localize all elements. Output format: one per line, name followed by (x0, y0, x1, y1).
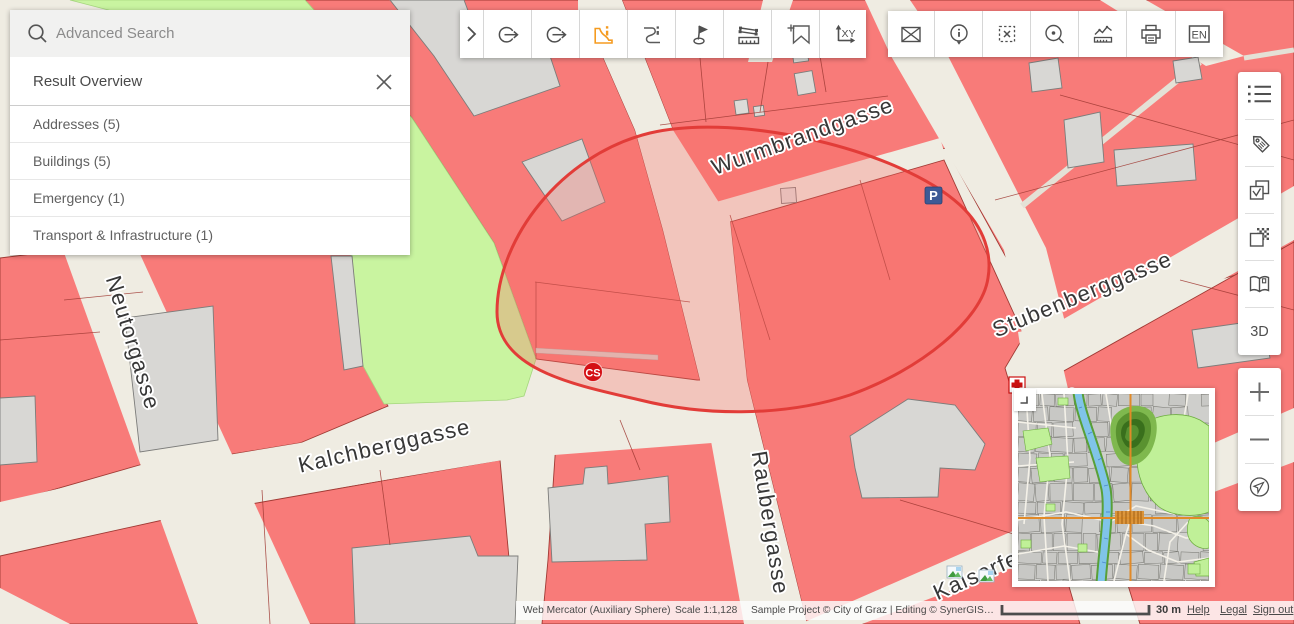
svg-text:XY: XY (842, 28, 856, 40)
svg-text:EN: EN (1192, 29, 1207, 41)
svg-text:CS: CS (585, 368, 600, 380)
svg-text:3D: 3D (1250, 324, 1269, 340)
svg-text:P: P (929, 188, 938, 203)
